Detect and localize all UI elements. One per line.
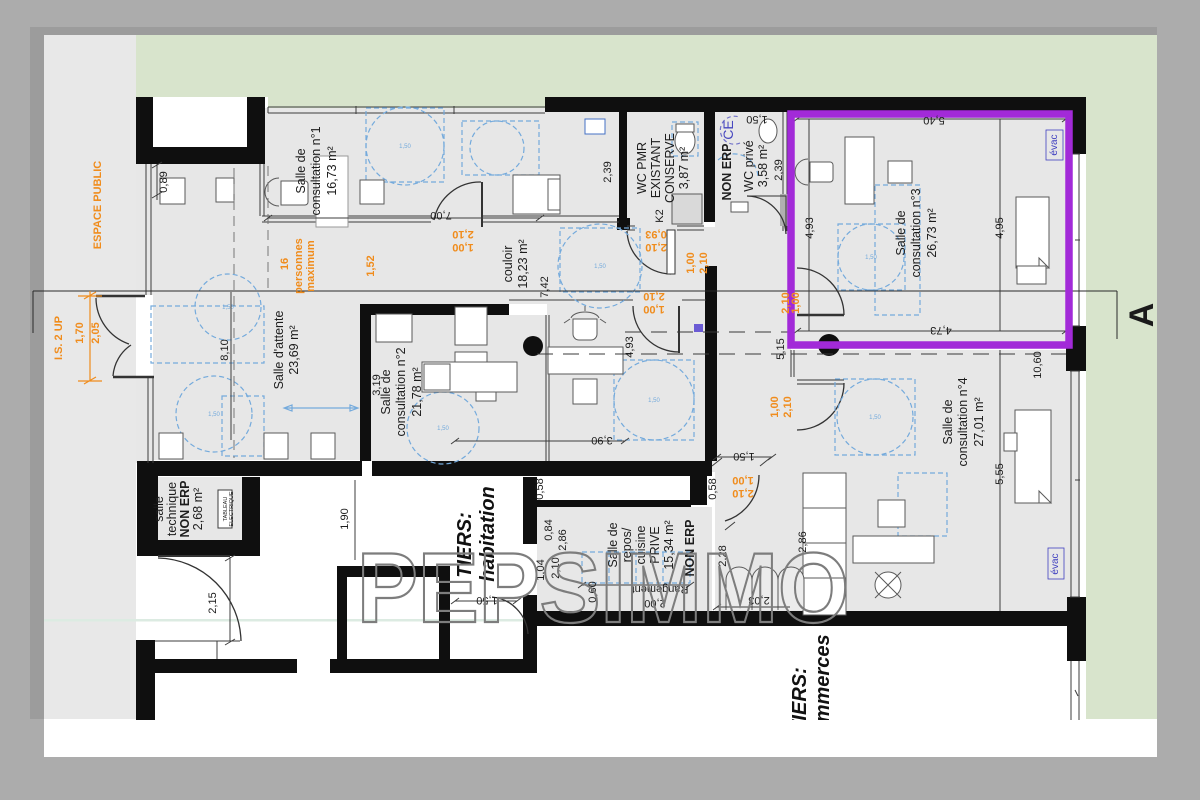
- svg-text:8,10: 8,10: [219, 339, 231, 360]
- svg-text:5,15: 5,15: [775, 338, 787, 359]
- svg-text:2,10: 2,10: [698, 252, 710, 273]
- svg-text:1,00: 1,00: [732, 474, 753, 486]
- svg-text:CONSERVE: CONSERVE: [663, 133, 677, 203]
- svg-text:maximum: maximum: [305, 240, 317, 292]
- svg-text:0,58: 0,58: [707, 478, 719, 499]
- svg-text:ELECTRIQUE: ELECTRIQUE: [229, 491, 235, 526]
- svg-text:23,69 m²: 23,69 m²: [287, 325, 301, 374]
- svg-text:5,40: 5,40: [923, 114, 944, 126]
- svg-text:WC privé: WC privé: [742, 140, 756, 191]
- svg-text:EXISTANT: EXISTANT: [649, 138, 663, 199]
- svg-text:couloir: couloir: [501, 246, 515, 283]
- svg-text:2,10: 2,10: [782, 396, 794, 417]
- svg-text:consultation n°3: consultation n°3: [909, 188, 923, 277]
- svg-text:10,60: 10,60: [1032, 351, 1044, 379]
- svg-text:1,50: 1,50: [208, 412, 220, 418]
- svg-text:3,90: 3,90: [591, 434, 612, 446]
- svg-text:ESPACE PUBLIC: ESPACE PUBLIC: [92, 161, 104, 249]
- svg-text:0,58: 0,58: [534, 478, 546, 499]
- svg-text:évac: évac: [1049, 134, 1060, 155]
- svg-text:2,10: 2,10: [643, 290, 664, 302]
- svg-text:technique: technique: [165, 482, 179, 536]
- svg-text:1,50: 1,50: [594, 264, 606, 270]
- svg-text:7,42: 7,42: [539, 276, 551, 297]
- svg-text:16: 16: [279, 258, 291, 270]
- svg-text:2,10: 2,10: [452, 228, 473, 240]
- svg-text:3,58 m²: 3,58 m²: [756, 145, 770, 187]
- svg-text:1,50: 1,50: [733, 450, 754, 462]
- svg-text:consultation n°2: consultation n°2: [394, 347, 408, 436]
- svg-text:16,73 m²: 16,73 m²: [325, 146, 339, 195]
- svg-text:1,50: 1,50: [865, 255, 877, 261]
- svg-text:NON ERP: NON ERP: [720, 144, 734, 201]
- svg-text:5,55: 5,55: [994, 463, 1006, 484]
- svg-text:A: A: [1123, 303, 1161, 328]
- svg-text:1,70: 1,70: [74, 322, 86, 343]
- svg-text:3,87 m²: 3,87 m²: [677, 147, 691, 189]
- svg-text:1,00: 1,00: [452, 241, 473, 253]
- svg-text:1,50: 1,50: [222, 305, 234, 311]
- svg-text:1,50: 1,50: [869, 415, 881, 421]
- svg-text:K2: K2: [654, 209, 666, 222]
- svg-text:4,95: 4,95: [994, 217, 1006, 238]
- svg-text:0,93: 0,93: [645, 228, 666, 240]
- svg-text:1,50: 1,50: [437, 426, 449, 432]
- svg-text:26,73 m²: 26,73 m²: [925, 208, 939, 257]
- svg-text:27,01 m²: 27,01 m²: [972, 397, 986, 446]
- svg-text:évac: évac: [1050, 553, 1061, 574]
- svg-text:3,19: 3,19: [371, 374, 383, 395]
- svg-text:Salle de: Salle de: [894, 210, 908, 255]
- svg-text:2,15: 2,15: [207, 592, 219, 613]
- svg-text:21,78 m²: 21,78 m²: [410, 367, 424, 416]
- svg-text:Salle de: Salle de: [294, 148, 308, 193]
- svg-text:PEPSIMMO: PEPSIMMO: [357, 532, 849, 643]
- svg-text:2,10: 2,10: [645, 241, 666, 253]
- svg-text:4,93: 4,93: [804, 217, 816, 238]
- svg-text:7,00: 7,00: [430, 209, 451, 221]
- svg-text:0,89: 0,89: [158, 171, 170, 192]
- svg-text:I.S. 2 UP: I.S. 2 UP: [53, 316, 65, 360]
- svg-text:18,23 m²: 18,23 m²: [516, 239, 530, 288]
- svg-text:NON ERP: NON ERP: [178, 481, 192, 538]
- svg-text:consultation n°4: consultation n°4: [956, 377, 970, 466]
- svg-text:1,00: 1,00: [685, 252, 697, 273]
- svg-text:2,68 m²: 2,68 m²: [191, 488, 205, 530]
- svg-text:1,50: 1,50: [648, 398, 660, 404]
- svg-text:1,00: 1,00: [790, 292, 802, 313]
- svg-text:2,39: 2,39: [602, 161, 614, 182]
- svg-text:4,73: 4,73: [930, 324, 951, 336]
- svg-text:2,10: 2,10: [732, 487, 753, 499]
- svg-text:1,50: 1,50: [746, 113, 767, 125]
- svg-text:consultation n°1: consultation n°1: [309, 126, 323, 215]
- svg-text:personnes: personnes: [293, 238, 305, 294]
- svg-text:2,39: 2,39: [773, 159, 785, 180]
- svg-text:4,93: 4,93: [624, 336, 636, 357]
- svg-text:1,50: 1,50: [399, 144, 411, 150]
- svg-text:Salle de: Salle de: [941, 399, 955, 444]
- svg-text:2,05: 2,05: [90, 322, 102, 343]
- svg-text:CE: CE: [720, 120, 736, 139]
- svg-text:Salle d'attente: Salle d'attente: [272, 311, 286, 390]
- svg-text:1,90: 1,90: [339, 508, 351, 529]
- svg-text:1,00: 1,00: [769, 396, 781, 417]
- svg-text:1,00: 1,00: [643, 303, 664, 315]
- svg-text:1,52: 1,52: [365, 255, 377, 276]
- svg-text:salle: salle: [152, 496, 166, 522]
- svg-text:WC PMR: WC PMR: [635, 142, 649, 194]
